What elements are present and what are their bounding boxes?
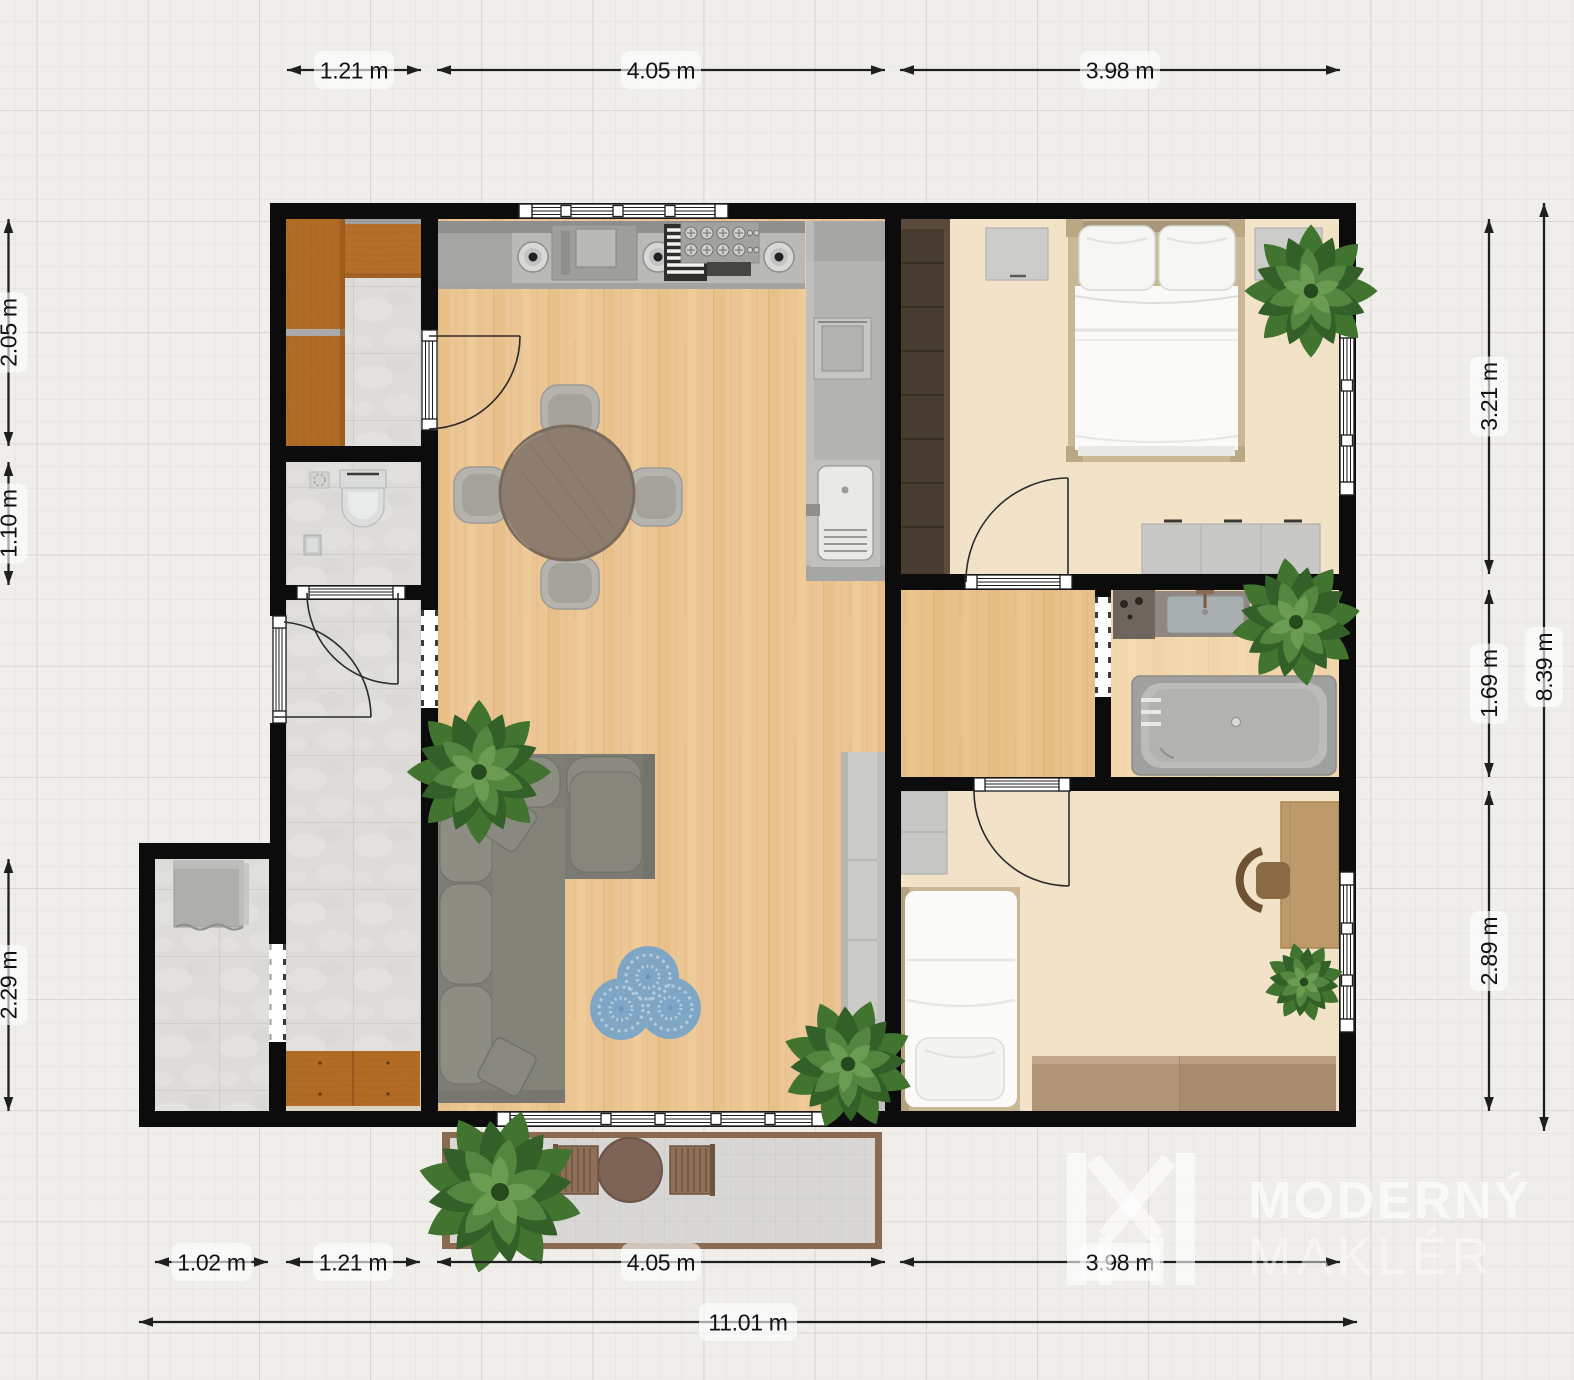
svg-text:3.98 m: 3.98 m <box>1086 58 1155 84</box>
svg-text:2.05 m: 2.05 m <box>0 298 22 367</box>
svg-text:3.21 m: 3.21 m <box>1476 362 1502 431</box>
svg-text:MODERNÝ: MODERNÝ <box>1248 1171 1531 1230</box>
svg-text:1.10 m: 1.10 m <box>0 489 22 558</box>
svg-text:1.21 m: 1.21 m <box>319 1250 388 1276</box>
svg-text:2.89 m: 2.89 m <box>1476 917 1502 986</box>
svg-text:4.05 m: 4.05 m <box>627 58 696 84</box>
svg-text:MAKLÉR: MAKLÉR <box>1248 1228 1495 1286</box>
svg-text:4.05 m: 4.05 m <box>627 1250 696 1276</box>
svg-text:1.21 m: 1.21 m <box>320 58 389 84</box>
svg-text:1.02 m: 1.02 m <box>177 1250 246 1276</box>
svg-text:3.98 m: 3.98 m <box>1086 1250 1155 1276</box>
svg-text:8.39 m: 8.39 m <box>1531 633 1557 702</box>
svg-text:11.01 m: 11.01 m <box>708 1310 787 1336</box>
svg-text:2.29 m: 2.29 m <box>0 951 22 1020</box>
svg-text:1.69 m: 1.69 m <box>1476 649 1502 718</box>
